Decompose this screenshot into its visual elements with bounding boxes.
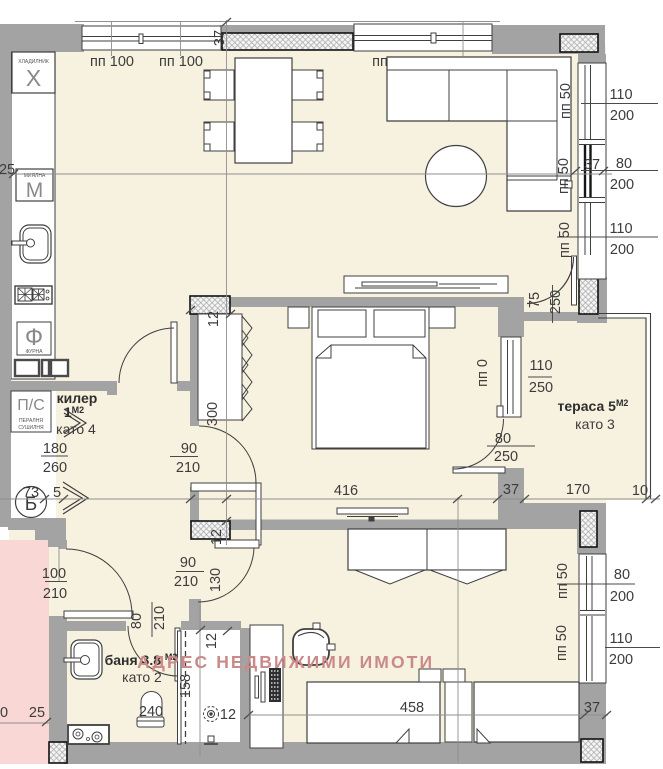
- svg-text:416: 416: [334, 483, 358, 499]
- svg-text:130: 130: [208, 568, 224, 592]
- svg-text:210: 210: [176, 460, 200, 476]
- svg-text:пп 50: пп 50: [558, 83, 574, 119]
- svg-text:73: 73: [23, 485, 39, 501]
- svg-text:пп 50: пп 50: [556, 158, 572, 194]
- svg-text:75: 75: [527, 292, 543, 308]
- svg-text:0: 0: [0, 705, 8, 721]
- svg-text:200: 200: [610, 177, 634, 193]
- svg-text:5: 5: [53, 485, 61, 501]
- svg-text:110: 110: [609, 87, 632, 103]
- svg-text:ФУРНА: ФУРНА: [25, 349, 43, 355]
- svg-text:като 3: като 3: [575, 416, 615, 432]
- svg-text:25: 25: [29, 705, 45, 721]
- svg-text:пп 50: пп 50: [555, 563, 571, 599]
- svg-text:25: 25: [0, 162, 15, 178]
- svg-text:200: 200: [610, 589, 634, 605]
- svg-text:90: 90: [180, 555, 196, 571]
- svg-text:80: 80: [495, 431, 511, 447]
- svg-text:като 4: като 4: [56, 421, 96, 437]
- svg-text:110: 110: [529, 358, 552, 374]
- svg-text:260: 260: [43, 460, 67, 476]
- svg-text:Ф: Ф: [25, 324, 43, 351]
- svg-text:37: 37: [503, 482, 519, 498]
- svg-text:458: 458: [400, 700, 424, 716]
- svg-text:37: 37: [584, 700, 600, 716]
- svg-text:пп 50: пп 50: [557, 222, 573, 258]
- svg-text:12: 12: [209, 529, 225, 545]
- svg-text:АДРЕС НЕДВИЖИМИ ИМОТИ: АДРЕС НЕДВИЖИМИ ИМОТИ: [137, 652, 434, 672]
- svg-text:килер: килер: [57, 390, 98, 406]
- svg-text:200: 200: [610, 108, 634, 124]
- svg-text:37: 37: [212, 30, 228, 46]
- svg-text:X: X: [26, 65, 41, 91]
- svg-text:90: 90: [181, 441, 197, 457]
- svg-text:ПЕРАЛНЯ: ПЕРАЛНЯ: [19, 418, 43, 424]
- svg-text:пп: пп: [372, 54, 388, 70]
- svg-text:37: 37: [584, 157, 600, 173]
- svg-text:12: 12: [220, 707, 236, 723]
- svg-text:158: 158: [178, 674, 194, 698]
- svg-text:100: 100: [42, 566, 66, 582]
- svg-text:пп 100: пп 100: [159, 54, 203, 70]
- svg-text:200: 200: [610, 242, 634, 258]
- svg-text:110: 110: [609, 631, 632, 647]
- svg-text:П/С: П/С: [17, 397, 45, 414]
- svg-text:80: 80: [614, 567, 630, 583]
- svg-text:пп 50: пп 50: [554, 625, 570, 661]
- svg-text:110: 110: [609, 221, 632, 237]
- svg-text:300: 300: [205, 402, 221, 426]
- svg-text:СУШИЛНЯ: СУШИЛНЯ: [18, 425, 44, 431]
- svg-text:250: 250: [529, 380, 553, 396]
- svg-text:240: 240: [139, 704, 163, 720]
- svg-text:250: 250: [494, 449, 518, 465]
- svg-text:M: M: [26, 179, 44, 202]
- svg-text:170: 170: [566, 482, 590, 498]
- svg-text:80: 80: [616, 156, 632, 172]
- svg-text:пп 0: пп 0: [475, 359, 491, 387]
- svg-text:250: 250: [548, 290, 564, 314]
- svg-text:12: 12: [204, 633, 220, 649]
- svg-text:210: 210: [152, 606, 168, 630]
- svg-text:200: 200: [609, 652, 633, 668]
- svg-text:80: 80: [129, 613, 145, 629]
- svg-text:210: 210: [43, 586, 67, 602]
- svg-text:210: 210: [174, 574, 198, 590]
- svg-text:180: 180: [43, 441, 67, 457]
- svg-text:пп 100: пп 100: [90, 54, 134, 70]
- svg-text:12: 12: [206, 311, 222, 327]
- svg-text:10: 10: [632, 483, 648, 499]
